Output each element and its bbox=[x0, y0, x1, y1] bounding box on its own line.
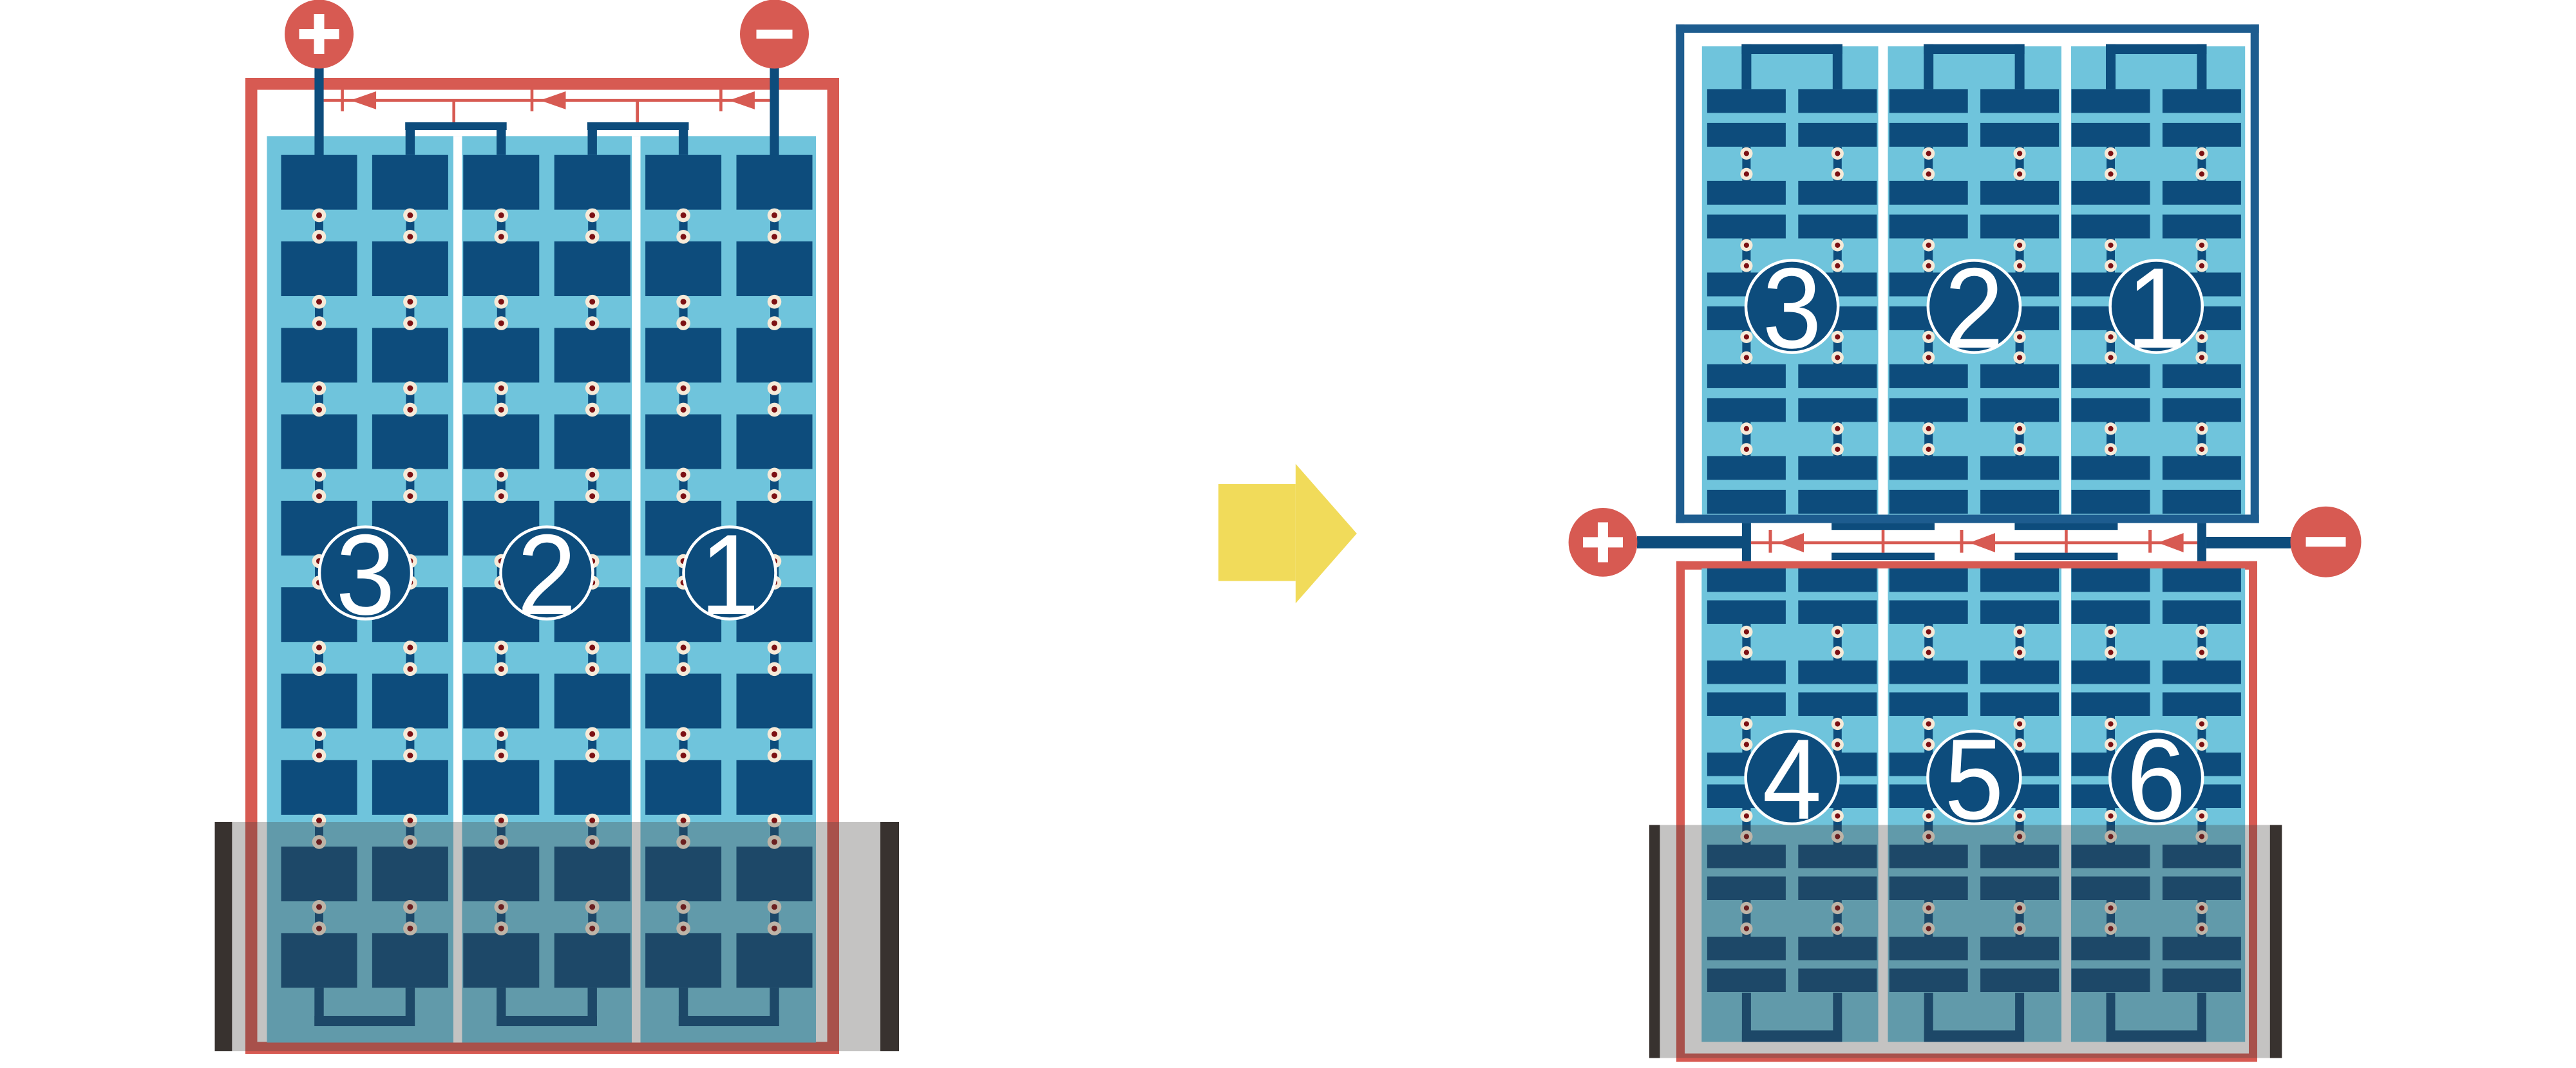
svg-text:3: 3 bbox=[336, 511, 395, 639]
svg-text:2: 2 bbox=[1944, 244, 2003, 372]
svg-text:5: 5 bbox=[1944, 715, 2003, 843]
svg-text:3: 3 bbox=[1763, 244, 1822, 372]
svg-text:2: 2 bbox=[517, 511, 576, 639]
svg-text:1: 1 bbox=[2126, 244, 2186, 372]
svg-text:4: 4 bbox=[1763, 715, 1822, 843]
svg-text:1: 1 bbox=[700, 511, 759, 639]
svg-text:6: 6 bbox=[2126, 715, 2186, 843]
